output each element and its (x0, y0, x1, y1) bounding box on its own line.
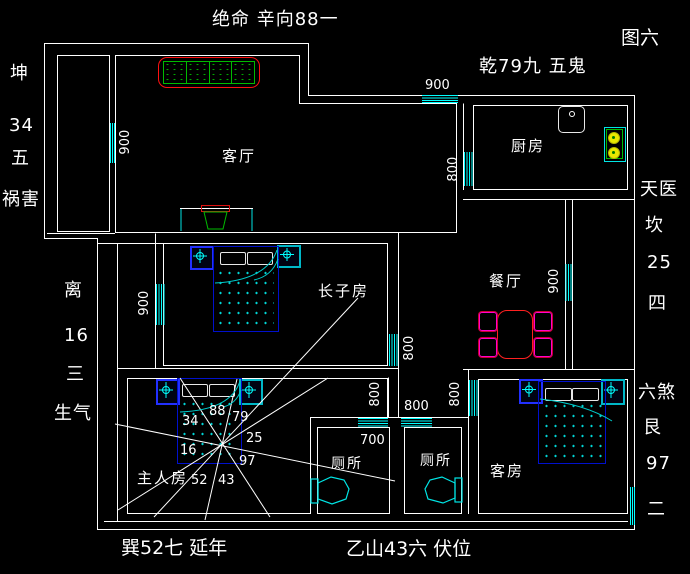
annotation-si: 四 (648, 294, 667, 314)
annotation-shengqi: 生气 (54, 404, 92, 424)
toilet-icon (425, 477, 462, 503)
annotation-bottom-left: 巽52七 延年 (121, 538, 227, 559)
annotation-li: 离 (64, 281, 83, 301)
annotation-san: 三 (66, 365, 85, 385)
bagua-number-79: 79 (232, 411, 249, 425)
bagua-number-97: 97 (239, 455, 256, 469)
room-label-toilet-right: 厕所 (420, 454, 452, 469)
annotation-bottom-right: 乙山43六 伏位 (346, 539, 471, 560)
dim-toilet-width: 700 (360, 434, 385, 448)
annotation-er: 二 (647, 500, 666, 520)
annotation-huohai: 祸害 (2, 190, 40, 210)
room-label-kitchen: 厨房 (511, 138, 545, 155)
annotation-kan: 坎 (645, 216, 664, 236)
annotation-16: 16 (64, 326, 89, 346)
bagua-number-88: 88 (209, 405, 226, 419)
room-label-eldest-son: 长子房 (318, 283, 369, 300)
annotation-25: 25 (647, 253, 672, 273)
room-label-living: 客厅 (222, 148, 256, 165)
annotation-wu: 五 (11, 149, 30, 169)
room-label-toilet-left: 厕所 (331, 457, 363, 472)
room-label-guest: 客房 (490, 463, 524, 480)
tv-set (180, 206, 253, 232)
annotation-kun: 坤 (10, 64, 29, 84)
bagua-number-34: 34 (182, 415, 199, 429)
bagua-number-25: 25 (246, 432, 263, 446)
room-label-dining: 餐厅 (489, 273, 523, 290)
annotation-gen: 艮 (643, 418, 662, 438)
annotation-top-right: 乾79九 五鬼 (479, 57, 587, 77)
dim-kitchen-window: 800 (447, 152, 461, 186)
bagua-number-16: 16 (180, 444, 197, 458)
annotation-tianyi: 天医 (640, 180, 678, 200)
dim-guest-window: 800 (449, 377, 463, 411)
annotation-top: 绝命 辛向88一 (212, 10, 339, 30)
annotation-97: 97 (646, 454, 671, 474)
dim-son-right-window: 800 (403, 331, 417, 365)
figure-label: 图六 (621, 28, 659, 49)
dim-living-window: 900 (119, 125, 133, 159)
bagua-number-52: 52 (191, 474, 208, 488)
dim-dining-window: 900 (548, 264, 562, 298)
dim-entry-window: 900 (425, 79, 450, 93)
annotation-34: 34 (9, 116, 34, 136)
dim-hall-window: 800 (404, 400, 429, 414)
room-label-master: 主人房 (137, 470, 188, 487)
bagua-number-43: 43 (218, 474, 235, 488)
toilet-icon (311, 477, 349, 504)
floorplan-canvas: 绝命 辛向88一 乾79九 五鬼 图六 坤 34 五 祸害 离 16 三 生气 … (0, 0, 690, 574)
annotation-liusha: 六煞 (638, 383, 676, 403)
dim-son-left-window: 900 (138, 286, 152, 320)
dim-master-window: 800 (369, 377, 383, 411)
